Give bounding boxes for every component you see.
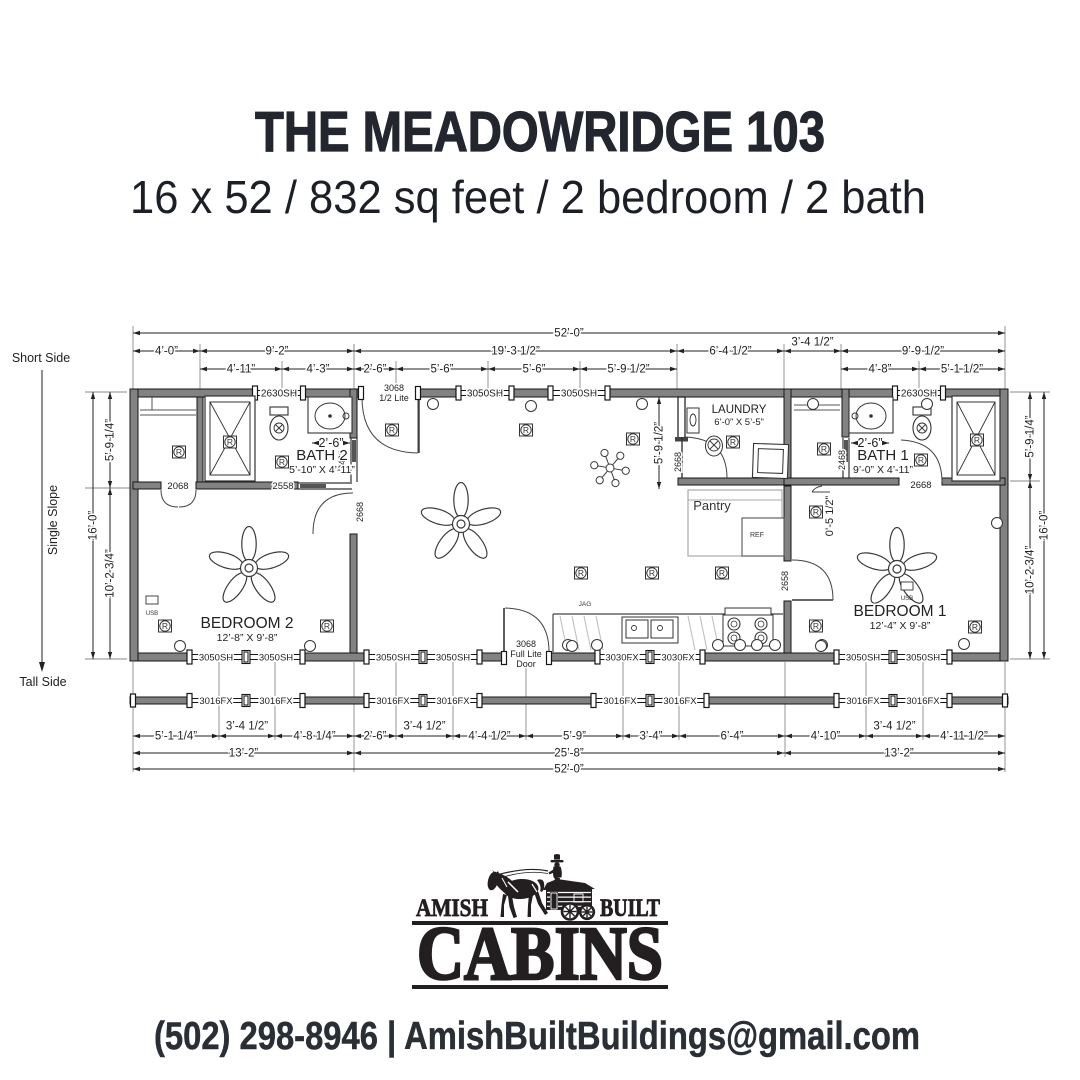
svg-text:3’-4 1/2”: 3’-4 1/2” [403, 721, 445, 733]
svg-text:3068: 3068 [384, 383, 404, 393]
svg-text:Door: Door [516, 659, 536, 669]
svg-text:3’-4 1/2”: 3’-4 1/2” [873, 721, 915, 733]
svg-text:2668: 2668 [673, 452, 683, 472]
svg-text:5’-9”: 5’-9” [563, 731, 586, 743]
svg-text:3030FX: 3030FX [605, 653, 639, 664]
svg-text:R: R [974, 435, 980, 445]
svg-text:R: R [523, 425, 529, 435]
svg-text:12’-8” X 9’-8”: 12’-8” X 9’-8” [217, 632, 278, 644]
svg-text:CABINS: CABINS [417, 912, 663, 996]
svg-text:Single Slope: Single Slope [46, 485, 60, 555]
svg-text:R: R [730, 437, 736, 447]
svg-text:4’-11 1/2”: 4’-11 1/2” [940, 731, 988, 743]
svg-text:3016FX: 3016FX [199, 696, 233, 707]
svg-text:THE MEADOWRIDGE 103: THE MEADOWRIDGE 103 [255, 100, 825, 164]
svg-text:2668: 2668 [910, 480, 931, 491]
svg-text:3’-4 1/2”: 3’-4 1/2” [791, 337, 833, 349]
svg-text:3016FX: 3016FX [906, 696, 940, 707]
svg-text:1/2 Lite: 1/2 Lite [379, 393, 409, 403]
svg-text:2’-6”: 2’-6” [363, 364, 386, 376]
svg-text:R: R [630, 434, 636, 444]
svg-text:9’-0” X 4’-11”: 9’-0” X 4’-11” [853, 464, 913, 476]
svg-text:5’-10” X 4’-11”: 5’-10” X 4’-11” [289, 464, 355, 476]
svg-text:6’-4 1/2”: 6’-4 1/2” [709, 346, 751, 358]
svg-text:2630SH: 2630SH [901, 389, 937, 400]
svg-text:3050SH: 3050SH [467, 389, 503, 400]
svg-text:2558: 2558 [272, 481, 293, 492]
svg-text:5’-1 1/4”: 5’-1 1/4” [155, 731, 197, 743]
svg-text:52’-0”: 52’-0” [554, 764, 584, 776]
svg-text:5’-1 1/2”: 5’-1 1/2” [941, 364, 983, 376]
svg-text:6’-4”: 6’-4” [720, 731, 743, 743]
svg-text:Full Lite: Full Lite [510, 649, 542, 659]
svg-text:52’-0”: 52’-0” [554, 328, 584, 340]
svg-text:4’-0”: 4’-0” [155, 346, 178, 358]
svg-text:5’-9 1/2”: 5’-9 1/2” [654, 422, 666, 464]
svg-text:(502) 298-8946 | AmishBuiltBui: (502) 298-8946 | AmishBuiltBuildings@gma… [154, 1015, 920, 1058]
svg-text:3050SH: 3050SH [561, 389, 597, 400]
svg-text:2658: 2658 [780, 571, 790, 591]
svg-text:3050SH: 3050SH [259, 653, 293, 664]
svg-text:R: R [972, 622, 978, 632]
svg-text:3016FX: 3016FX [259, 696, 293, 707]
svg-text:4’-3”: 4’-3” [306, 364, 329, 376]
svg-text:BATH 2: BATH 2 [296, 447, 347, 464]
svg-text:R: R [176, 447, 182, 457]
svg-text:R: R [813, 621, 819, 631]
svg-text:Pantry: Pantry [693, 498, 731, 513]
svg-text:R: R [821, 444, 827, 454]
svg-text:BATH 1: BATH 1 [857, 447, 908, 464]
svg-text:R: R [227, 437, 233, 447]
svg-text:19’-3 1/2”: 19’-3 1/2” [491, 346, 540, 358]
svg-text:2068: 2068 [167, 481, 188, 492]
svg-text:16’-0”: 16’-0” [1039, 511, 1051, 541]
svg-text:3050SH: 3050SH [436, 653, 470, 664]
svg-text:R: R [813, 507, 819, 517]
svg-text:9’-2”: 9’-2” [265, 346, 288, 358]
svg-text:5’-6”: 5’-6” [522, 364, 545, 376]
svg-text:5’-9 1/2”: 5’-9 1/2” [607, 364, 649, 376]
svg-text:Tall Side: Tall Side [19, 675, 66, 689]
svg-text:LAUNDRY: LAUNDRY [712, 404, 767, 416]
svg-text:4’-4 1/2”: 4’-4 1/2” [468, 731, 510, 743]
svg-text:9’-9 1/2”: 9’-9 1/2” [902, 346, 944, 358]
svg-text:BEDROOM 2: BEDROOM 2 [200, 615, 293, 632]
svg-text:3’-4”: 3’-4” [639, 731, 662, 743]
svg-text:13’-2”: 13’-2” [229, 748, 259, 760]
svg-text:3016FX: 3016FX [846, 696, 880, 707]
svg-text:4’-10”: 4’-10” [811, 731, 841, 743]
svg-text:3016FX: 3016FX [436, 696, 470, 707]
svg-text:25’-8”: 25’-8” [554, 748, 584, 760]
svg-text:3068: 3068 [516, 639, 536, 649]
svg-text:10’-2 3/4”: 10’-2 3/4” [1025, 546, 1037, 595]
svg-text:R: R [162, 621, 168, 631]
svg-text:2668: 2668 [355, 502, 365, 522]
svg-text:2468: 2468 [837, 450, 847, 470]
svg-text:USB: USB [146, 611, 158, 617]
svg-text:R: R [279, 457, 285, 467]
svg-text:R: R [389, 425, 395, 435]
svg-text:6’-0” X 5’-5”: 6’-0” X 5’-5” [714, 417, 764, 428]
svg-text:3030FX: 3030FX [661, 653, 695, 664]
svg-text:USB: USB [901, 596, 913, 602]
svg-text:4’-11”: 4’-11” [227, 364, 256, 376]
svg-text:3016FX: 3016FX [376, 696, 410, 707]
svg-text:R: R [578, 568, 584, 578]
svg-text:5’-6”: 5’-6” [430, 364, 453, 376]
svg-text:3050SH: 3050SH [846, 653, 880, 664]
svg-text:3016FX: 3016FX [663, 696, 697, 707]
svg-text:5’-9 1/4”: 5’-9 1/4” [105, 419, 117, 461]
svg-text:BEDROOM 1: BEDROOM 1 [853, 603, 946, 620]
svg-text:4’-8”: 4’-8” [868, 364, 891, 376]
svg-text:3’-4 1/2”: 3’-4 1/2” [226, 721, 268, 733]
svg-text:16 x 52 / 832 sq feet / 2 bedr: 16 x 52 / 832 sq feet / 2 bedroom / 2 ba… [130, 171, 926, 223]
svg-text:JAG: JAG [579, 601, 592, 608]
svg-text:REF: REF [750, 532, 764, 539]
svg-text:10’-2 3/4”: 10’-2 3/4” [105, 549, 117, 598]
svg-text:5’-9 1/4”: 5’-9 1/4” [1025, 415, 1037, 457]
svg-text:3050SH: 3050SH [906, 653, 940, 664]
svg-text:3050SH: 3050SH [199, 653, 233, 664]
svg-text:3016FX: 3016FX [603, 696, 637, 707]
svg-text:2’-6”: 2’-6” [363, 731, 386, 743]
svg-text:16’-0”: 16’-0” [88, 511, 100, 541]
svg-text:R: R [719, 568, 725, 578]
svg-text:12’-4” X 9’-8”: 12’-4” X 9’-8” [870, 620, 931, 632]
svg-text:Short Side: Short Side [12, 351, 70, 365]
svg-text:13’-2”: 13’-2” [884, 748, 914, 760]
svg-text:R: R [918, 455, 924, 465]
svg-text:3050SH: 3050SH [376, 653, 410, 664]
svg-text:0’-5 1/2”: 0’-5 1/2” [824, 495, 836, 536]
svg-text:R: R [324, 621, 330, 631]
svg-text:2630SH: 2630SH [261, 389, 297, 400]
svg-text:R: R [649, 568, 655, 578]
svg-text:4’-8 1/4”: 4’-8 1/4” [293, 731, 335, 743]
